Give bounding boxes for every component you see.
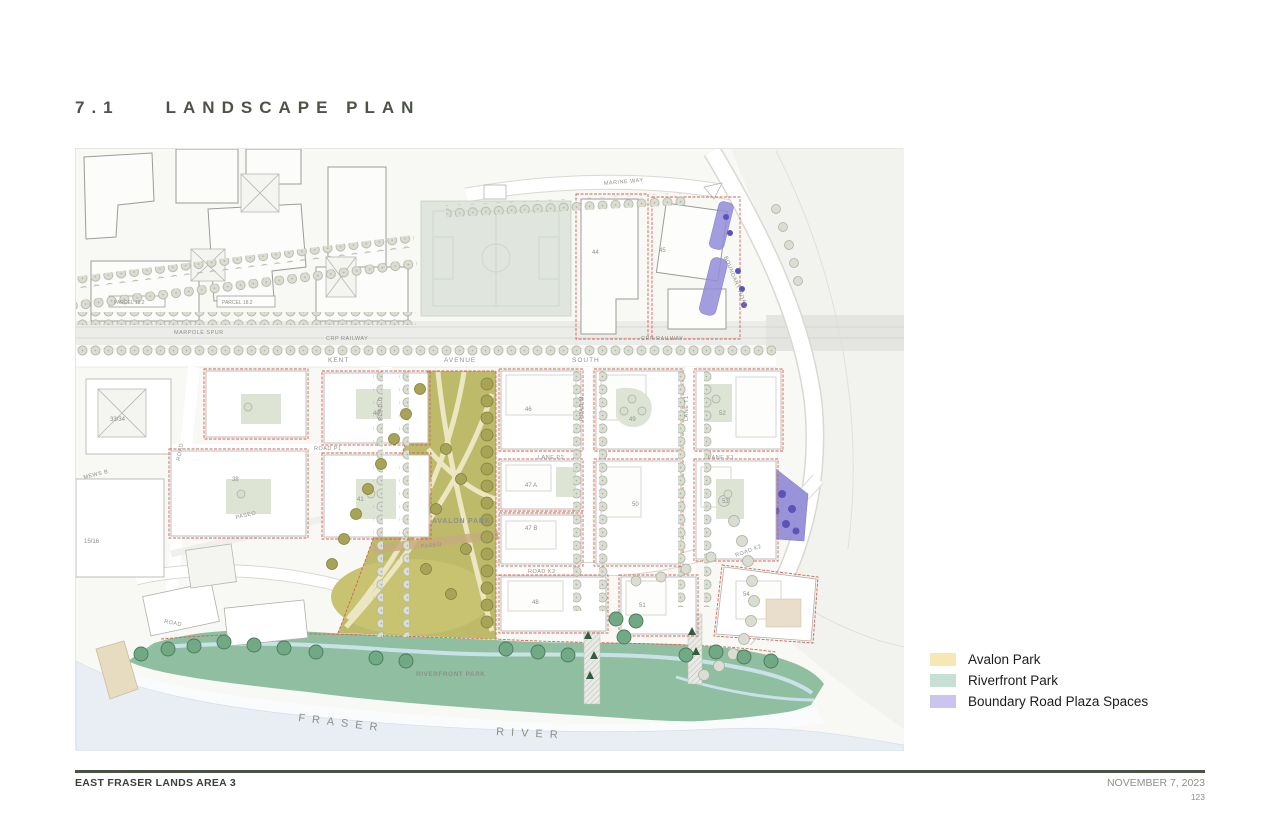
legend-label: Boundary Road Plaza Spaces <box>968 694 1148 709</box>
kent-label: KENT <box>328 357 349 364</box>
parcel-15-16: 15/16 <box>84 539 100 545</box>
avalon-park-label: AVALON PARK <box>432 518 491 525</box>
parcel-47b: 47 B <box>525 526 537 532</box>
lane-t1-label: LANE T1 <box>684 395 690 421</box>
parcel-46: 46 <box>525 407 532 413</box>
parcel-54: 54 <box>743 592 750 598</box>
parcel-40: 40 <box>373 411 380 417</box>
legend-item: Boundary Road Plaza Spaces <box>930 694 1148 709</box>
legend-label: Riverfront Park <box>968 673 1058 688</box>
footer-date: NOVEMBER 7, 2023 <box>905 777 1205 789</box>
legend-swatch-avalon-park <box>930 653 956 666</box>
south-label: SOUTH <box>572 357 600 364</box>
legend-label: Avalon Park <box>968 652 1041 667</box>
lane-k1-label: LANE K1 <box>708 455 734 461</box>
road-p1-label: ROAD P1 <box>314 446 342 452</box>
legend: Avalon Park Riverfront Park Boundary Roa… <box>930 652 1148 709</box>
parcel-41: 41 <box>357 497 364 503</box>
footer-rule <box>75 770 1205 773</box>
footer-project-name: EAST FRASER LANDS AREA 3 <box>75 777 236 789</box>
parcel-18-2-label: PARCEL 18.2 <box>114 300 145 306</box>
parcel-45: 45 <box>659 248 666 254</box>
document-page: 7.1 LANDSCAPE PLAN <box>0 0 1280 829</box>
parcel-44: 44 <box>592 250 599 256</box>
lane-p2-label: LANE P2 <box>538 455 564 461</box>
riverfront-park-label: RIVERFRONT PARK <box>416 671 486 678</box>
legend-swatch-riverfront-park <box>930 674 956 687</box>
parcel-50: 50 <box>632 502 639 508</box>
landscape-plan-map: MARINE WAY BOUNDARY ROAD MARPOLE SPUR CR… <box>75 148 903 750</box>
avenue-label: AVENUE <box>444 357 476 364</box>
crp-railway-label-2: CRP RAILWAY <box>641 336 683 342</box>
section-number: 7.1 <box>75 98 120 118</box>
legend-item: Avalon Park <box>930 652 1148 667</box>
legend-item: Riverfront Park <box>930 673 1148 688</box>
page-title: 7.1 LANDSCAPE PLAN <box>75 98 420 118</box>
footer-page-number: 123 <box>905 792 1205 802</box>
parcel-47a: 47 A <box>525 483 537 489</box>
section-title: LANDSCAPE PLAN <box>166 98 421 118</box>
legend-swatch-boundary-road-plaza <box>930 695 956 708</box>
parcel-53: 53 <box>722 499 729 505</box>
parcel-33-34: 33/34 <box>110 417 126 423</box>
site-plan-svg: MARINE WAY BOUNDARY ROAD MARPOLE SPUR CR… <box>76 149 904 751</box>
road-k2-label: ROAD K2 <box>528 569 556 575</box>
road-m-label: ROAD M <box>579 396 585 421</box>
parcel-49: 49 <box>629 417 636 423</box>
parcel-18-2-label-2: PARCEL 18.2 <box>222 300 253 306</box>
road-d-label: ROAD D <box>378 397 384 421</box>
parcel-48: 48 <box>532 600 539 606</box>
parcel-51: 51 <box>639 603 646 609</box>
marpole-spur-label: MARPOLE SPUR <box>174 330 224 336</box>
parcel-52: 52 <box>719 411 726 417</box>
parcel-38: 38 <box>232 477 239 483</box>
crp-railway-label: CRP RAILWAY <box>326 336 368 342</box>
right-blocks <box>499 369 818 643</box>
